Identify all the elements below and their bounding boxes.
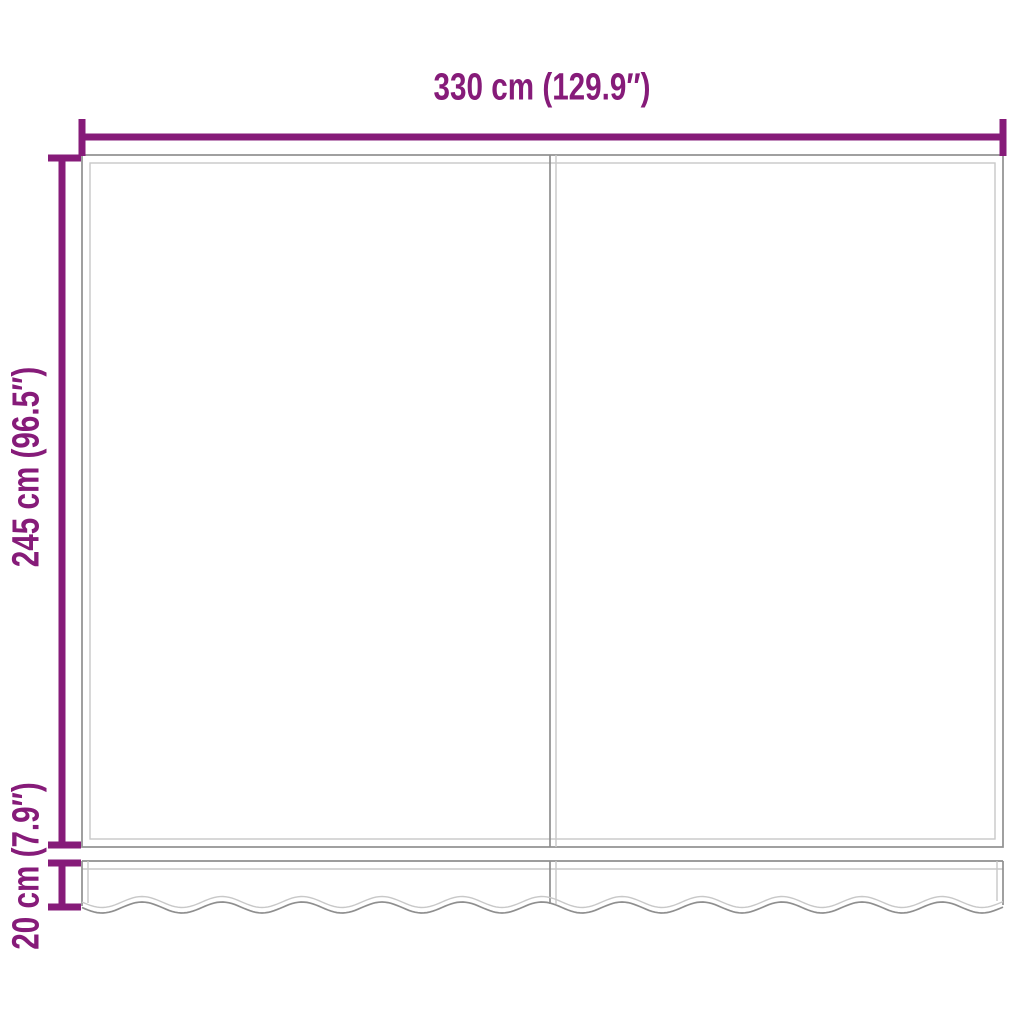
width-dimension-label: 330 cm (129.9″) — [434, 67, 651, 110]
product-dimension-diagram: 330 cm (129.9″) 245 cm (96.5″) 20 cm (7.… — [0, 0, 1024, 1024]
height-dimension — [48, 158, 81, 845]
fabric-panel-outer-outline — [82, 155, 1003, 847]
fabric-panel-inner-outline — [90, 163, 995, 839]
valance — [82, 861, 1003, 913]
width-dimension — [82, 119, 1003, 156]
fabric-panel — [82, 155, 1003, 847]
valance-height-dimension — [48, 863, 81, 907]
valance-dimension-label: 20 cm (7.9″) — [6, 782, 49, 949]
valance-scallop-outer-edge — [82, 902, 1003, 913]
awning-fabric-drawing — [0, 0, 1024, 1024]
height-dimension-label: 245 cm (96.5″) — [6, 367, 49, 567]
